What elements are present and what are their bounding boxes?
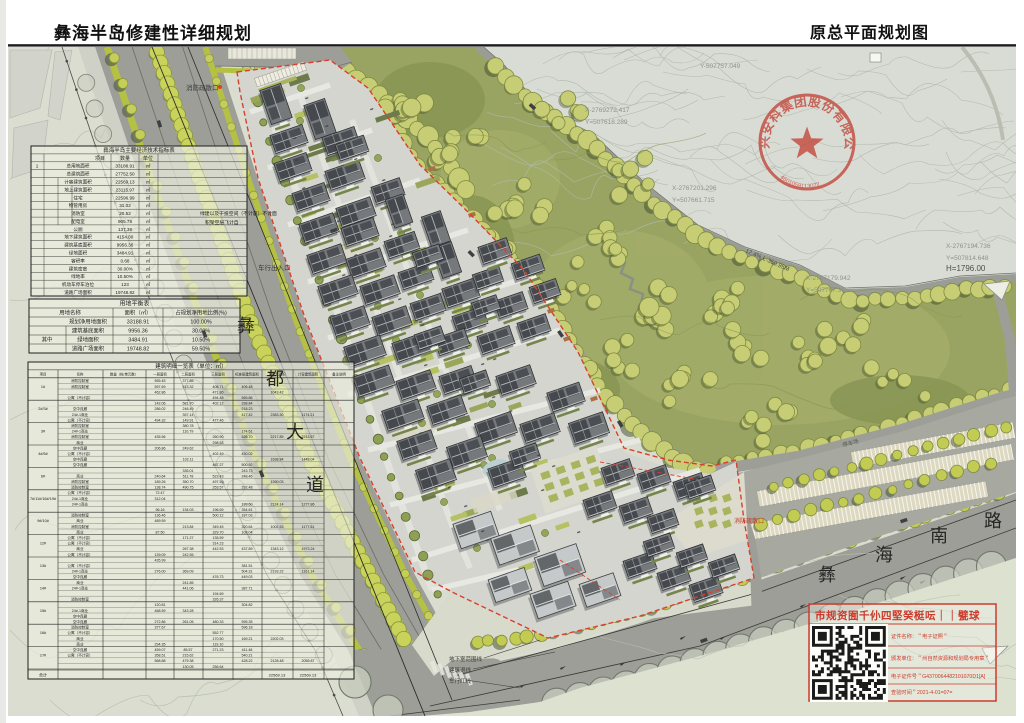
svg-text:原总平面规划图: 原总平面规划图 [810, 23, 929, 42]
svg-text:504.31: 504.31 [242, 570, 253, 574]
svg-text:商业: 商业 [76, 440, 84, 445]
svg-text:公寓（不计容）: 公寓（不计容） [67, 653, 92, 658]
svg-text:349.45: 349.45 [213, 525, 224, 529]
svg-text:596.18: 596.18 [242, 626, 253, 630]
svg-text:15#: 15# [40, 609, 47, 613]
svg-text:108.04: 108.04 [242, 530, 253, 534]
svg-text:建筑退线: 建筑退线 [449, 666, 472, 674]
svg-text:139.09: 139.09 [155, 553, 166, 557]
svg-text:消防疏散口: 消防疏散口 [734, 517, 764, 525]
svg-text:130.05: 130.05 [183, 665, 194, 669]
svg-text:公寓（不计容）: 公寓（不计容） [67, 563, 92, 568]
svg-text:329.70: 329.70 [213, 530, 224, 534]
svg-text:总建筑面积: 总建筑面积 [67, 171, 90, 178]
svg-text:车行出入口: 车行出入口 [258, 263, 291, 272]
svg-text:积架空层飞计自: 积架空层飞计自 [205, 219, 239, 226]
svg-text:1177.61: 1177.61 [302, 525, 315, 529]
svg-text:消防控制室: 消防控制室 [71, 479, 89, 484]
svg-text:商业: 商业 [76, 518, 84, 523]
svg-text:402.49: 402.49 [213, 452, 224, 456]
svg-text:272.86: 272.86 [155, 620, 166, 624]
svg-text:22569.13: 22569.13 [115, 180, 135, 185]
svg-text:公寓（不计容）: 公寓（不计容） [67, 535, 92, 540]
svg-text:369.09: 369.09 [183, 570, 194, 574]
svg-text:消防控制室: 消防控制室 [71, 423, 89, 428]
svg-text:消防控制室: 消防控制室 [71, 597, 89, 602]
svg-text:169.21: 169.21 [242, 637, 253, 641]
svg-text:X-2767194.736: X-2767194.736 [946, 243, 991, 250]
svg-text:㎡: ㎡ [146, 242, 151, 248]
svg-text:189.26: 189.26 [155, 480, 166, 484]
svg-text:空中连廊: 空中连廊 [73, 445, 88, 450]
svg-text:机动车停车泊位: 机动车停车泊位 [62, 281, 95, 288]
svg-text:单位: 单位 [143, 155, 153, 162]
svg-text:14#: 14# [40, 586, 47, 590]
svg-text:30.00%: 30.00% [192, 329, 210, 335]
svg-text:Y=507814.648: Y=507814.648 [946, 255, 989, 262]
svg-text:24#-1商业: 24#-1商业 [72, 501, 89, 506]
svg-text:2217.85: 2217.85 [271, 435, 284, 439]
svg-text:商业: 商业 [76, 546, 84, 551]
svg-text:空中连廊: 空中连廊 [73, 619, 88, 624]
svg-text:136.46: 136.46 [155, 514, 166, 518]
svg-text:X-2769272.417: X-2769272.417 [585, 107, 630, 114]
svg-text:消防控制室: 消防控制室 [71, 625, 89, 630]
svg-text:2#/3#: 2#/3# [38, 407, 48, 411]
svg-text:497.59: 497.59 [213, 480, 224, 484]
svg-text:294.35: 294.35 [155, 642, 166, 646]
svg-text:320.64: 320.64 [242, 525, 253, 529]
svg-text:358.51: 358.51 [155, 654, 166, 658]
svg-text:462.86: 462.86 [155, 390, 166, 394]
svg-text:Y-507757.049: Y-507757.049 [700, 63, 741, 70]
svg-text:绿地率: 绿地率 [71, 273, 85, 280]
svg-text:Y=507661.715: Y=507661.715 [672, 197, 715, 204]
svg-text:建筑明细一览表（单位：㎡）: 建筑明细一览表（单位：㎡） [155, 362, 227, 370]
svg-text:142.06: 142.06 [155, 402, 166, 406]
svg-text:9956.36: 9956.36 [128, 329, 148, 335]
svg-text:437.89: 437.89 [242, 547, 253, 551]
svg-text:1277.86: 1277.86 [302, 502, 315, 506]
svg-text:24#-1商业: 24#-1商业 [72, 585, 89, 590]
svg-text:100.00%: 100.00% [190, 320, 211, 326]
svg-text:9#/10#: 9#/10# [37, 519, 50, 523]
svg-text:车行红线: 车行红线 [449, 677, 472, 685]
svg-text:0.68: 0.68 [121, 258, 130, 263]
svg-text:㎡: ㎡ [146, 250, 151, 256]
svg-text:10.50%: 10.50% [117, 274, 133, 279]
svg-text:㎡: ㎡ [146, 194, 151, 200]
svg-text:2383.30: 2383.30 [271, 413, 284, 417]
svg-text:用地名称: 用地名称 [59, 309, 81, 317]
svg-text:南: 南 [930, 526, 948, 546]
svg-text:480.33: 480.33 [213, 620, 224, 624]
svg-text:22596.99: 22596.99 [115, 195, 135, 200]
svg-text:59.50%: 59.50% [192, 347, 210, 353]
svg-text:261.05: 261.05 [183, 620, 194, 624]
svg-text:1161.14: 1161.14 [302, 570, 315, 574]
svg-text:3484.91: 3484.91 [128, 338, 148, 344]
svg-text:408.71: 408.71 [213, 385, 224, 389]
svg-text:33188.91: 33188.91 [127, 320, 149, 326]
svg-text:颁发单位：＂州自然资源和规划局专用章＂: 颁发单位：＂州自然资源和规划局专用章＂ [891, 654, 990, 662]
svg-text:123: 123 [121, 282, 129, 287]
svg-text:24#-1商业: 24#-1商业 [72, 412, 89, 417]
svg-text:20.52: 20.52 [119, 211, 131, 216]
svg-text:513.32: 513.32 [183, 385, 194, 389]
svg-text:1002.53: 1002.53 [271, 525, 284, 529]
svg-text:计容建筑面积: 计容建筑面积 [64, 179, 92, 186]
svg-text:都: 都 [266, 369, 284, 389]
svg-text:248.49: 248.49 [183, 407, 194, 411]
svg-text:171.27: 171.27 [183, 536, 194, 540]
svg-text:350.70: 350.70 [183, 480, 194, 484]
svg-text:1973.24: 1973.24 [302, 547, 315, 551]
svg-text:用地平衡表: 用地平衡表 [119, 300, 149, 308]
svg-text:彝海半岛修建性详细规划: 彝海半岛修建性详细规划 [54, 23, 252, 43]
svg-text:3484.91: 3484.91 [117, 251, 134, 256]
svg-text:194.69: 194.69 [213, 592, 224, 596]
svg-text:道路广场面积: 道路广场面积 [72, 345, 105, 353]
svg-text:243.73: 243.73 [242, 469, 253, 473]
svg-text:552.77: 552.77 [213, 631, 224, 635]
svg-text:消防疏散口: 消防疏散口 [186, 83, 219, 92]
svg-text:1: 1 [36, 164, 39, 169]
svg-text:㎡: ㎡ [146, 226, 151, 232]
svg-text:X-2767179.942: X-2767179.942 [806, 275, 851, 282]
svg-text:149.91: 149.91 [183, 418, 194, 422]
svg-text:298.53: 298.53 [213, 441, 224, 445]
svg-text:24#-1商业: 24#-1商业 [72, 608, 89, 613]
svg-text:1638.84: 1638.84 [271, 458, 284, 462]
svg-text:500.92: 500.92 [242, 463, 253, 467]
svg-text:㎡: ㎡ [146, 273, 151, 279]
svg-text:138.74: 138.74 [155, 486, 166, 490]
svg-text:476.73: 476.73 [213, 575, 224, 579]
svg-text:442.53: 442.53 [213, 547, 224, 551]
svg-text:1174.21: 1174.21 [302, 413, 315, 417]
svg-text:查验时间＂2021-4-01=07=: 查验时间＂2021-4-01=07= [891, 688, 952, 696]
svg-text:2128.48: 2128.48 [271, 659, 284, 663]
svg-text:彝海半岛主要经济技术指标表: 彝海半岛主要经济技术指标表 [103, 146, 175, 154]
svg-text:314.23: 314.23 [213, 542, 224, 546]
svg-text:381.51: 381.51 [242, 564, 253, 568]
svg-text:1043.42: 1043.42 [271, 390, 284, 394]
svg-text:206.86: 206.86 [155, 446, 166, 450]
svg-text:13#: 13# [40, 564, 47, 568]
svg-text:1390.03: 1390.03 [271, 480, 284, 484]
svg-text:商业: 商业 [76, 473, 84, 478]
svg-text:494.48: 494.48 [213, 396, 224, 400]
svg-text:规划净用地面积: 规划净用地面积 [69, 318, 107, 326]
svg-text:22569.13: 22569.13 [300, 673, 317, 678]
svg-text:1448.04: 1448.04 [302, 458, 315, 462]
svg-text:备注说明: 备注说明 [332, 371, 346, 376]
svg-text:海: 海 [875, 545, 893, 565]
svg-text:㎡: ㎡ [146, 210, 151, 216]
svg-text:240.64: 240.64 [155, 474, 166, 478]
svg-text:公寓（不计容）: 公寓（不计容） [67, 630, 92, 635]
svg-text:项目: 项目 [40, 372, 47, 376]
svg-text:12#: 12# [40, 542, 47, 546]
svg-text:430.02: 430.02 [242, 452, 253, 456]
svg-text:㎡: ㎡ [146, 218, 151, 224]
svg-text:102.11: 102.11 [183, 458, 194, 462]
svg-text:199.60: 199.60 [242, 502, 253, 506]
svg-text:公寓（不计容）: 公寓（不计容） [67, 552, 92, 557]
svg-text:387.71: 387.71 [242, 586, 253, 590]
svg-text:595.35: 595.35 [242, 620, 253, 624]
svg-text:16#: 16# [40, 631, 47, 635]
svg-text:526.70: 526.70 [242, 435, 253, 439]
svg-text:27752.50: 27752.50 [115, 172, 135, 177]
svg-text:路: 路 [984, 511, 1002, 531]
svg-text:建筑密度: 建筑密度 [69, 265, 88, 272]
svg-text:绿建以及干投空间（不计容）不计面: 绿建以及干投空间（不计容）不计面 [200, 210, 277, 217]
svg-text:402.12: 402.12 [213, 402, 224, 406]
svg-text:343.28: 343.28 [183, 609, 194, 613]
svg-text:消防控制室: 消防控制室 [71, 524, 89, 529]
svg-text:110.79: 110.79 [183, 430, 194, 434]
svg-text:彝: 彝 [237, 316, 255, 336]
svg-text:容积率: 容积率 [71, 257, 85, 264]
svg-text:商业: 商业 [76, 636, 84, 641]
svg-text:19748.82: 19748.82 [115, 290, 135, 295]
svg-text:417.42: 417.42 [242, 413, 253, 417]
svg-text:2055.87: 2055.87 [302, 659, 315, 663]
svg-text:380.78: 380.78 [183, 424, 194, 428]
svg-text:555.45: 555.45 [155, 379, 166, 383]
svg-text:空中连廊: 空中连廊 [73, 457, 88, 462]
svg-text:260.90: 260.90 [213, 435, 224, 439]
svg-text:215.62: 215.62 [183, 654, 194, 658]
svg-text:174.61: 174.61 [242, 430, 253, 434]
svg-text:241.85: 241.85 [183, 581, 194, 585]
svg-text:空中连廊: 空中连廊 [73, 406, 88, 411]
svg-text:绿地面积: 绿地面积 [77, 336, 99, 344]
svg-text:计容建筑面积: 计容建筑面积 [298, 371, 319, 376]
svg-text:Y=507618.289: Y=507618.289 [585, 119, 628, 126]
svg-text:597.69: 597.69 [155, 385, 166, 389]
svg-text:商业: 商业 [76, 529, 84, 534]
svg-text:占规划净用地比例(%): 占规划净用地比例(%) [175, 309, 227, 317]
svg-text:218.23: 218.23 [242, 407, 253, 411]
svg-text:435.99: 435.99 [155, 558, 166, 562]
svg-text:33188.91: 33188.91 [115, 164, 135, 169]
svg-text:名称: 名称 [77, 371, 84, 376]
svg-text:消防控制室: 消防控制室 [71, 513, 89, 518]
svg-text:411.48: 411.48 [242, 648, 253, 652]
svg-text:170.50: 170.50 [213, 637, 224, 641]
svg-text:354.61: 354.61 [242, 508, 253, 512]
svg-text:三层面积: 三层面积 [211, 371, 225, 376]
svg-text:267.38: 267.38 [183, 547, 194, 551]
svg-text:540.21: 540.21 [242, 654, 253, 658]
svg-text:490.75: 490.75 [183, 486, 194, 490]
svg-text:87.50: 87.50 [156, 530, 165, 534]
svg-text:㎡: ㎡ [146, 171, 151, 177]
svg-text:471.86: 471.86 [213, 390, 224, 394]
svg-text:72.47: 72.47 [156, 491, 165, 495]
svg-text:568.88: 568.88 [155, 659, 166, 663]
svg-text:565.86: 565.86 [242, 396, 253, 400]
svg-text:㎡: ㎡ [146, 179, 151, 185]
svg-text:4#/5#: 4#/5# [38, 452, 48, 456]
svg-text:96.16: 96.16 [156, 508, 165, 512]
svg-text:4154.00: 4154.00 [117, 235, 134, 240]
svg-text:312.04: 312.04 [155, 497, 166, 501]
svg-text:135.59: 135.59 [213, 536, 224, 540]
svg-text:286.02: 286.02 [155, 407, 166, 411]
svg-text:523.43: 523.43 [213, 474, 224, 478]
svg-text:标准层建筑面积: 标准层建筑面积 [235, 371, 259, 376]
svg-text:消防控制室: 消防控制室 [71, 485, 89, 490]
svg-text:441.06: 441.06 [183, 586, 194, 590]
svg-text:242.55: 242.55 [183, 553, 194, 557]
svg-text:㎡: ㎡ [146, 257, 151, 263]
svg-text:㎡: ㎡ [146, 234, 151, 240]
svg-text:459.07: 459.07 [155, 648, 166, 652]
svg-text:总用地面积: 总用地面积 [67, 163, 90, 170]
svg-text:9956.36: 9956.36 [117, 243, 134, 248]
svg-text:消防控制室: 消防控制室 [71, 378, 89, 383]
svg-text:271.23: 271.23 [213, 648, 224, 652]
svg-text:2124.14: 2124.14 [271, 502, 284, 506]
svg-text:其中: 其中 [42, 336, 53, 344]
svg-text:500.12: 500.12 [213, 514, 224, 518]
svg-text:377.67: 377.67 [155, 626, 166, 630]
svg-text:134.03: 134.03 [183, 508, 194, 512]
svg-text:304.82: 304.82 [242, 603, 253, 607]
svg-text:空中连廊: 空中连廊 [73, 613, 88, 618]
svg-text:住宅: 住宅 [73, 194, 83, 200]
svg-text:292.48: 292.48 [242, 486, 253, 490]
svg-text:468.59: 468.59 [155, 609, 166, 613]
svg-text:建筑基底面积: 建筑基底面积 [72, 327, 105, 335]
svg-text:消防控制室: 消防控制室 [71, 434, 89, 439]
svg-text:㎡: ㎡ [146, 163, 151, 169]
svg-text:31.02: 31.02 [119, 203, 131, 208]
svg-text:357.14: 357.14 [183, 413, 194, 417]
svg-text:335.01: 335.01 [183, 469, 194, 473]
svg-text:10.50%: 10.50% [192, 338, 210, 344]
svg-text:2193.22: 2193.22 [271, 570, 284, 574]
svg-text:511.78: 511.78 [183, 474, 194, 478]
svg-text:120.81: 120.81 [155, 603, 166, 607]
svg-text:配电室: 配电室 [71, 218, 85, 225]
svg-text:商业: 商业 [76, 641, 84, 646]
svg-text:空中连廊: 空中连廊 [73, 574, 88, 579]
svg-text:数量: 数量 [120, 155, 130, 162]
svg-text:23115.97: 23115.97 [116, 187, 135, 192]
svg-text:商业: 商业 [76, 580, 84, 585]
svg-text:合计: 合计 [39, 672, 47, 678]
svg-text:213.84: 213.84 [183, 525, 194, 529]
svg-text:消防控制室: 消防控制室 [71, 384, 89, 389]
svg-text:㎡: ㎡ [146, 202, 151, 208]
svg-text:581.70: 581.70 [183, 402, 194, 406]
svg-text:大: 大 [286, 422, 304, 442]
svg-text:1343.12: 1343.12 [271, 547, 284, 551]
svg-text:249.62: 249.62 [183, 446, 194, 450]
svg-text:公寓（不计容）: 公寓（不计容） [67, 395, 92, 400]
svg-text:137.38: 137.38 [118, 227, 132, 232]
svg-text:24#-1商业: 24#-1商业 [72, 569, 89, 574]
svg-text:彝: 彝 [818, 565, 836, 585]
svg-text:道路广场面积: 道路广场面积 [64, 289, 92, 296]
svg-text:276.00: 276.00 [155, 570, 166, 574]
svg-text:196.69: 196.69 [213, 508, 224, 512]
svg-text:物管用房: 物管用房 [69, 202, 88, 209]
svg-text:地下建筑面积: 地下建筑面积 [64, 234, 92, 241]
svg-text:空中连廊: 空中连廊 [73, 462, 88, 467]
svg-text:㎡: ㎡ [146, 289, 151, 295]
svg-text:证件名称：＂电子证照＂: 证件名称：＂电子证照＂ [891, 632, 948, 640]
svg-text:85.57: 85.57 [184, 648, 193, 652]
svg-text:X-2767201.296: X-2767201.296 [672, 185, 717, 192]
svg-text:项目: 项目 [95, 156, 105, 162]
svg-text:公寓（不计容）: 公寓（不计容） [67, 541, 92, 546]
svg-text:㎡: ㎡ [146, 186, 151, 192]
svg-text:22569.13: 22569.13 [269, 673, 286, 678]
svg-text:24#-1商业: 24#-1商业 [72, 429, 89, 434]
svg-text:19748.82: 19748.82 [127, 347, 149, 353]
svg-text:7#/11#/16#/19#: 7#/11#/16#/19# [30, 497, 57, 501]
svg-text:㎡: ㎡ [146, 265, 151, 271]
svg-text:二层面积: 二层面积 [181, 371, 195, 376]
svg-text:377.85: 377.85 [183, 379, 194, 383]
svg-text:256.64: 256.64 [213, 665, 224, 669]
svg-text:30.00%: 30.00% [117, 266, 133, 271]
svg-text:市规资囿千仦四堅癸梃呍｜｜甓球: 市规资囿千仦四堅癸梃呍｜｜甓球 [815, 609, 980, 622]
svg-text:187.03: 187.03 [242, 514, 253, 518]
svg-text:绿地面积: 绿地面积 [69, 250, 88, 257]
svg-text:24#-1商业: 24#-1商业 [72, 496, 89, 501]
svg-text:248.46: 248.46 [242, 474, 253, 478]
svg-text:494.32: 494.32 [155, 418, 166, 422]
svg-text:消防室: 消防室 [71, 210, 85, 217]
svg-text:面积（㎡）: 面积（㎡） [125, 309, 152, 317]
svg-text:479.38: 479.38 [183, 659, 194, 663]
svg-text:空中连廊: 空中连廊 [73, 647, 88, 652]
svg-text:905.78: 905.78 [118, 219, 132, 224]
svg-text:㎡: ㎡ [146, 281, 151, 287]
svg-text:公寓（不计容）: 公寓（不计容） [67, 490, 92, 495]
svg-text:449.03: 449.03 [242, 575, 253, 579]
svg-text:Y=507767.345: Y=507767.345 [806, 287, 849, 294]
svg-text:489.59: 489.59 [155, 519, 166, 523]
svg-text:道: 道 [306, 475, 324, 495]
svg-text:一层面积: 一层面积 [153, 371, 167, 376]
svg-text:406.48: 406.48 [242, 385, 253, 389]
svg-text:H=1796.00: H=1796.00 [946, 264, 986, 273]
svg-text:119.10: 119.10 [213, 642, 224, 646]
svg-text:338.84: 338.84 [242, 402, 253, 406]
svg-text:数量（栋/单元数）: 数量（栋/单元数） [110, 371, 138, 376]
svg-text:487.27: 487.27 [213, 463, 224, 467]
svg-text:435.56: 435.56 [155, 435, 166, 439]
svg-text:地上建筑面积: 地上建筑面积 [64, 186, 92, 193]
svg-text:2202.03: 2202.03 [271, 637, 284, 641]
svg-text:公寓（不计容）: 公寓（不计容） [67, 451, 92, 456]
svg-text:电子证件号＂G4370064482101070D1[A]: 电子证件号＂G4370064482101070D1[A] [891, 672, 986, 680]
svg-text:477.46: 477.46 [213, 418, 224, 422]
svg-text:326.37: 326.37 [213, 598, 224, 602]
svg-text:428.22: 428.22 [242, 659, 253, 663]
svg-text:253.57: 253.57 [213, 486, 224, 490]
svg-text:地下室范围线: 地下室范围线 [449, 655, 483, 663]
svg-text:17#: 17# [40, 654, 47, 658]
